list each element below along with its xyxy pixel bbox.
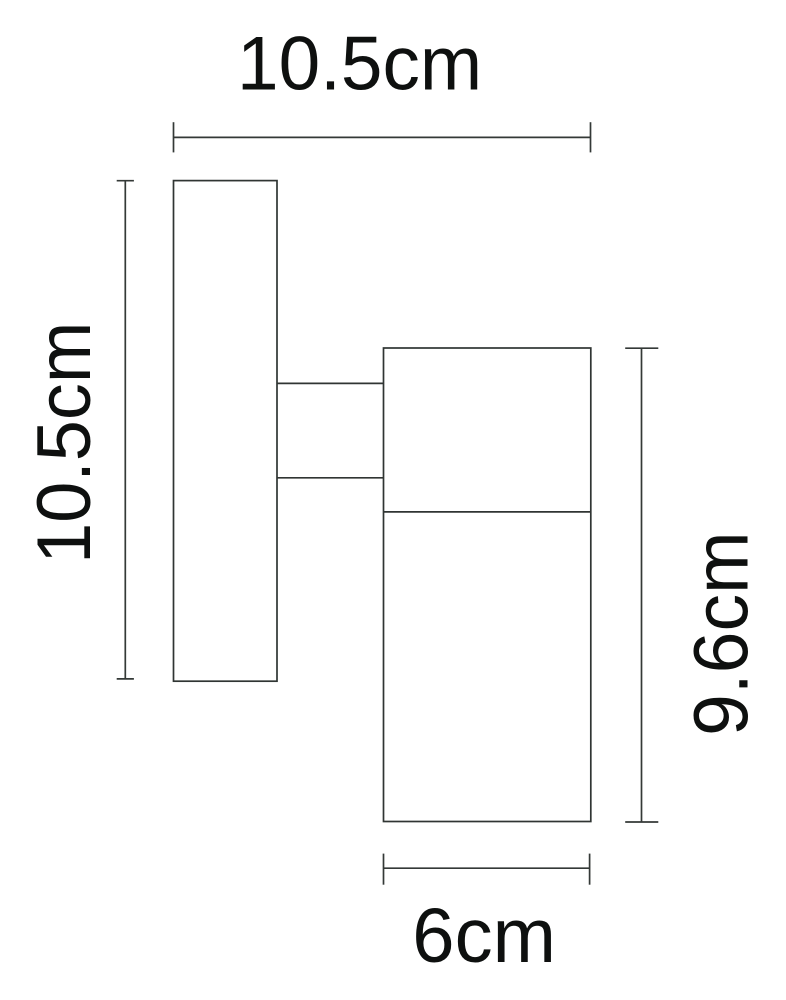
svg-text:6cm: 6cm [412, 893, 556, 979]
svg-text:10.5cm: 10.5cm [22, 322, 107, 564]
svg-text:10.5cm: 10.5cm [237, 22, 482, 107]
svg-text:9.6cm: 9.6cm [679, 531, 765, 736]
